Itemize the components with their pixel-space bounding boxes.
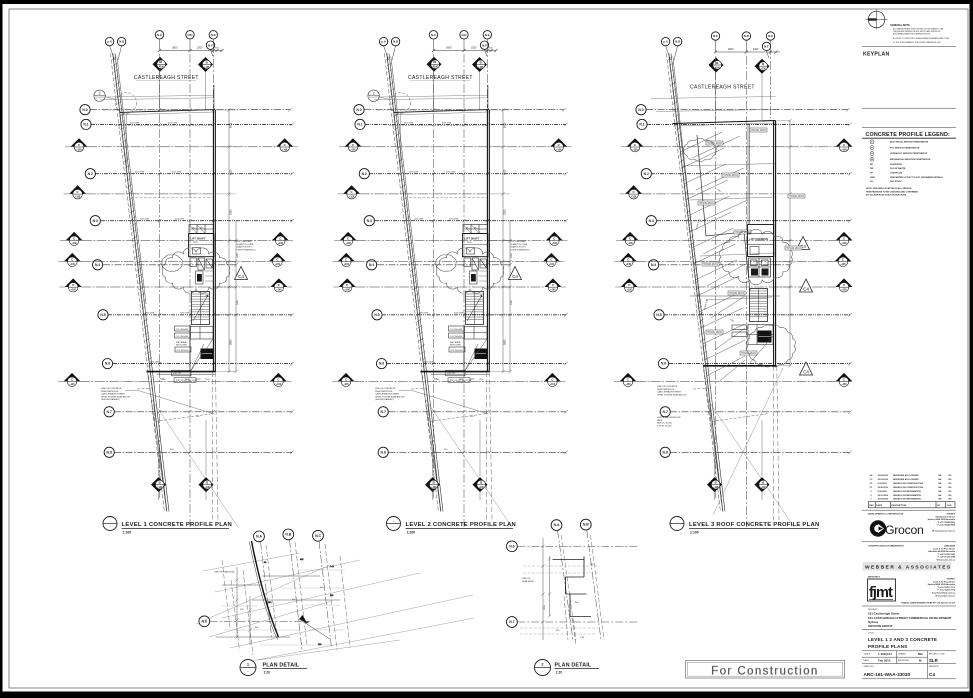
svg-text:3000: 3000 [728, 48, 734, 51]
svg-text:PENETRATION IN: PENETRATION IN [657, 388, 675, 391]
svg-text:REVISIONS AS CLOUDED: REVISIONS AS CLOUDED [893, 478, 919, 481]
svg-text:T +61 8 8110 1800: T +61 8 8110 1800 [938, 554, 956, 556]
svg-text:E sydney@fjmt.com.au: E sydney@fjmt.com.au [932, 592, 956, 595]
svg-text:F +61 2 9240 8999: F +61 2 9240 8999 [937, 524, 955, 527]
svg-text:ISSUED FOR INFORMATION: ISSUED FOR INFORMATION [893, 494, 921, 497]
svg-text:GENERAL NOTE: GENERAL NOTE [890, 24, 910, 27]
svg-text:REVISIONS AS CLOUDED: REVISIONS AS CLOUDED [893, 474, 919, 477]
svg-text:fjmt: fjmt [869, 585, 893, 601]
svg-text:ARC-161-WAA-33030: ARC-161-WAA-33030 [864, 672, 911, 677]
svg-text:PENETRATIONS TO BE CHECKED AND: PENETRATIONS TO BE CHECKED AND CONFIRMED [866, 190, 919, 193]
svg-text:18.02.2010: 18.02.2010 [878, 487, 889, 489]
svg-text:ISSUED FOR INFORMATION: ISSUED FOR INFORMATION [893, 490, 921, 493]
svg-text:N.D: N.D [744, 34, 749, 38]
svg-text:DATE: DATE [876, 504, 882, 507]
svg-text:C4: C4 [803, 287, 809, 292]
svg-text:HYDRAULIC SERVICE PENETRATION: HYDRAULIC SERVICE PENETRATION [890, 152, 928, 155]
svg-text:BK: BK [938, 491, 942, 493]
svg-text:TOS RL 28.15: TOS RL 28.15 [723, 175, 738, 177]
svg-text:BK: BK [938, 479, 942, 481]
svg-text:SYDNEY: SYDNEY [946, 579, 955, 581]
svg-text:TOS RL 28.15: TOS RL 28.15 [786, 248, 801, 250]
svg-text:DEVELOPMENT & CONSTRUCTION: DEVELOPMENT & CONSTRUCTION [868, 514, 904, 516]
svg-text:F +61 2 9251 7072: F +61 2 9251 7072 [937, 590, 955, 592]
svg-text:LINE OF: LINE OF [522, 578, 531, 580]
svg-text:N.2: N.2 [644, 172, 649, 176]
svg-text:Mm: Mm [918, 652, 923, 656]
svg-text:For Construction: For Construction [711, 666, 818, 678]
svg-text:TOS RL 28.15: TOS RL 28.15 [707, 332, 722, 334]
svg-text:18.12.2009: 18.12.2009 [878, 495, 889, 497]
svg-text:LEVEL 1 CONCRETE PROFILE PLAN: LEVEL 1 CONCRETE PROFILE PLAN [122, 522, 233, 528]
svg-text:N.7: N.7 [509, 620, 514, 624]
svg-text:CONCRETE PROFILE LEGEND:: CONCRETE PROFILE LEGEND: [866, 132, 951, 138]
svg-text:KEYPLAN: KEYPLAN [863, 52, 889, 58]
svg-text:161 CASTLEREAGH STREET COMMERC: 161 CASTLEREAGH STREET COMMERCIAL DEVELO… [868, 616, 952, 620]
svg-text:1:20: 1:20 [264, 670, 271, 674]
svg-text:FRANCIS-JONES MOREHEN THORP PT: FRANCIS-JONES MOREHEN THORP PTY LTD ACN … [901, 602, 955, 605]
svg-text:Sydney NSW 2000 Australia: Sydney NSW 2000 Australia [928, 583, 956, 586]
svg-text:N.B: N.B [285, 533, 291, 537]
svg-text:DOWN PIPE: DOWN PIPE [890, 164, 903, 166]
svg-text:TOS RL 28.15: TOS RL 28.15 [707, 143, 722, 145]
svg-text:15.04.2010: 15.04.2010 [878, 474, 889, 477]
svg-text:T +61 2 9251 7077: T +61 2 9251 7077 [937, 587, 955, 589]
svg-text:TOS RL 28.15: TOS RL 28.15 [729, 293, 744, 295]
svg-text:WEBBER & ASSOCIATES: WEBBER & ASSOCIATES [865, 565, 952, 571]
svg-text:N.6: N.6 [202, 619, 207, 623]
svg-text:SHEET NO: SHEET NO [864, 666, 875, 668]
svg-text:TOS RL 28.15: TOS RL 28.15 [703, 264, 718, 266]
svg-text:ELECTRICAL SERVICE PENETRATION: ELECTRICAL SERVICE PENETRATION [890, 141, 929, 144]
svg-text:PVC SERVICE PENETRATION: PVC SERVICE PENETRATION [890, 146, 920, 149]
svg-text:N.A: N.A [256, 535, 262, 539]
svg-text:ISSUED FOR CONSTRUCTION: ISSUED FOR CONSTRUCTION [893, 487, 924, 489]
svg-text:N.C: N.C [315, 534, 321, 538]
svg-text:N.A: N.A [554, 523, 560, 527]
svg-text:1:100@A1: 1:100@A1 [878, 652, 892, 656]
svg-text:DATE: DATE [864, 659, 870, 662]
svg-text:1:20: 1:20 [556, 670, 563, 674]
svg-text:BK: BK [938, 499, 942, 501]
svg-text:BK: BK [938, 475, 942, 477]
svg-text:TITLE: TITLE [868, 633, 874, 635]
svg-text:400W x 300 OVERFLOW: 400W x 300 OVERFLOW [657, 417, 681, 419]
svg-text:DRAWN: DRAWN [898, 652, 906, 655]
svg-text:BK: BK [938, 495, 942, 497]
svg-text:FW: FW [870, 168, 873, 170]
svg-text:SCALE: SCALE [864, 652, 871, 655]
svg-text:PROFILE PLANS: PROFILE PLANS [868, 644, 907, 649]
svg-text:CASTLEREAGH STREET: CASTLEREAGH STREET [657, 391, 682, 394]
svg-text:NOTE: SIZE AND LOCATION OF ALL: NOTE: SIZE AND LOCATION OF ALL SERVICE [866, 187, 912, 190]
svg-text:SYDNEY: SYDNEY [946, 514, 955, 516]
svg-text:CONSTRUCTION DOCUMENTATION: CONSTRUCTION DOCUMENTATION [868, 545, 904, 548]
svg-text:F +61 8 8110 1899: F +61 8 8110 1899 [938, 557, 956, 559]
svg-text:N.6: N.6 [509, 544, 514, 548]
svg-text:BY ALL SERVICES SUB-CONTRACTOR: BY ALL SERVICES SUB-CONTRACTORS [866, 194, 907, 197]
svg-text:N.B: N.B [675, 40, 680, 44]
svg-text:OVERFLOW: OVERFLOW [890, 173, 902, 175]
svg-text:BY: BY [937, 505, 941, 507]
svg-text:FLOOR WASTE: FLOOR WASTE [890, 167, 906, 170]
svg-text:LINE OF CONCRETE: LINE OF CONCRETE [657, 386, 678, 388]
svg-text:N.8: N.8 [663, 450, 668, 454]
svg-text:GROCON GROUP: GROCON GROUP [868, 624, 892, 628]
svg-text:LEVEL 1 2 AND 3 CONCRETE: LEVEL 1 2 AND 3 CONCRETE [868, 637, 937, 642]
svg-text:16.04.2009: 16.04.2009 [878, 498, 889, 501]
svg-text:1:100: 1:100 [690, 531, 699, 535]
svg-text:T +61 2 9240 8900: T +61 2 9240 8900 [937, 521, 955, 524]
svg-text:SWO: SWO [870, 177, 875, 179]
svg-text:W www.grocon.com.au: W www.grocon.com.au [932, 530, 956, 533]
svg-text:REV: REV [869, 505, 874, 507]
svg-text:N.5: N.5 [656, 313, 661, 317]
svg-text:LIFT OVERRUN: LIFT OVERRUN [750, 238, 769, 241]
svg-text:Sydney NSW 2000 Australia: Sydney NSW 2000 Australia [928, 518, 956, 521]
svg-text:MECHANICAL SERVICES PENETRATIO: MECHANICAL SERVICES PENETRATION [890, 158, 931, 161]
svg-text:18.03.2010: 18.03.2010 [878, 479, 889, 481]
svg-text:1:100: 1:100 [407, 531, 416, 535]
svg-text:CASTLEREAGH STREET: CASTLEREAGH STREET [690, 85, 755, 91]
svg-text:M: M [871, 159, 873, 161]
svg-text:Feb 2010: Feb 2010 [878, 658, 891, 662]
svg-text:2200: 2200 [753, 48, 759, 51]
svg-text:N.4: N.4 [651, 263, 656, 267]
svg-text:LEVEL PODIUM SLAB BELOW: LEVEL PODIUM SLAB BELOW [657, 393, 686, 396]
svg-text:ARCHITECT: ARCHITECT [868, 576, 881, 579]
svg-text:TOS RL 28.15: TOS RL 28.15 [699, 203, 714, 205]
svg-text:CHK: CHK [947, 505, 952, 507]
svg-text:SLAB EDGE: SLAB EDGE [522, 580, 534, 583]
svg-text:N.E: N.E [768, 34, 773, 38]
svg-text:N.7: N.7 [663, 410, 668, 414]
svg-text:PLAN DETAIL: PLAN DETAIL [555, 662, 592, 668]
svg-text:VAC STACK: VAC STACK [890, 180, 902, 183]
svg-text:DESCRIPTION: DESCRIPTION [891, 505, 906, 507]
svg-text:REVISION: REVISION [929, 666, 939, 668]
svg-text:5.02.2010: 5.02.2010 [878, 491, 888, 493]
svg-text:N.3: N.3 [649, 219, 654, 223]
svg-text:N.F: N.F [764, 45, 769, 49]
svg-text:TOS RL 28.15: TOS RL 28.15 [789, 196, 804, 198]
svg-text:Level 5, 70 King Street: Level 5, 70 King Street [933, 580, 955, 583]
svg-text:BK: BK [938, 483, 942, 485]
svg-text:ISSUED FOR CONSTRUCTION: ISSUED FOR CONSTRUCTION [893, 483, 924, 485]
svg-text:W www.fjmt.com.au: W www.fjmt.com.au [935, 594, 955, 597]
svg-text:Level 2, 19 Pirie Street: Level 2, 19 Pirie Street [933, 547, 955, 550]
svg-text:161 Castlereagh Street: 161 Castlereagh Street [868, 612, 899, 616]
svg-text:WEIR: WEIR [657, 420, 663, 422]
svg-text:LEVEL 3 ROOF CONCRETE PROFILE: LEVEL 3 ROOF CONCRETE PROFILE PLAN [689, 522, 819, 528]
svg-text:ISSUED FOR INFORMATION: ISSUED FOR INFORMATION [893, 498, 921, 501]
svg-text:C4: C4 [929, 672, 935, 677]
svg-text:190 Elizabeth Street: 190 Elizabeth Street [935, 515, 955, 518]
svg-text:Grocon: Grocon [885, 523, 924, 537]
svg-text:N.6: N.6 [661, 362, 666, 366]
svg-text:N.0: N.0 [638, 108, 643, 112]
svg-text:N.1: N.1 [639, 123, 644, 127]
svg-text:W www.waa.net.au: W www.waa.net.au [936, 559, 955, 562]
svg-text:SIDE WATER OUTLET TO HYD. ENGI: SIDE WATER OUTLET TO HYD. ENGINEERS DETA… [890, 176, 943, 179]
svg-text:ADELAIDE: ADELAIDE [944, 545, 955, 548]
svg-text:Adelaide SA 5000 Australia: Adelaide SA 5000 Australia [928, 550, 955, 553]
svg-text:TOP RL 32.200: TOP RL 32.200 [657, 425, 672, 427]
svg-text:PLAN DETAIL: PLAN DETAIL [263, 662, 300, 668]
svg-text:LINE OF SLAB EDGE: LINE OF SLAB EDGE [214, 571, 235, 574]
svg-text:TOS RL 28.15: TOS RL 28.15 [751, 130, 766, 132]
svg-text:SLR: SLR [929, 658, 939, 663]
svg-text:PROJECT CODE: PROJECT CODE [929, 653, 945, 655]
svg-text:C4: C4 [803, 370, 809, 375]
svg-text:BWK RL 32.500: BWK RL 32.500 [657, 423, 673, 425]
svg-text:1:100: 1:100 [123, 531, 132, 535]
svg-text:BK: BK [938, 487, 942, 489]
svg-text:N.B: N.B [583, 523, 589, 527]
svg-text:LEVEL 2 CONCRETE PROFILE PLAN: LEVEL 2 CONCRETE PROFILE PLAN [406, 522, 517, 528]
svg-text:5.03.2010: 5.03.2010 [878, 483, 888, 485]
svg-text:APPROVED: APPROVED [898, 659, 910, 662]
